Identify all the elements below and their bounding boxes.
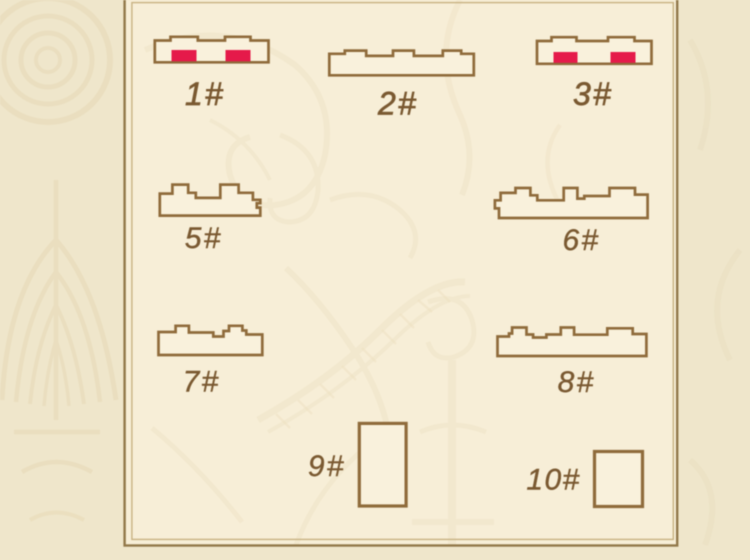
svg-text:7#: 7#: [183, 366, 221, 399]
svg-text:2#: 2#: [377, 86, 418, 122]
svg-text:3#: 3#: [573, 76, 613, 112]
svg-text:5#: 5#: [185, 222, 223, 255]
svg-text:10#: 10#: [526, 464, 580, 497]
svg-text:8#: 8#: [558, 366, 596, 399]
svg-text:1#: 1#: [185, 76, 225, 112]
svg-text:6#: 6#: [563, 224, 601, 257]
svg-text:9#: 9#: [308, 450, 346, 483]
